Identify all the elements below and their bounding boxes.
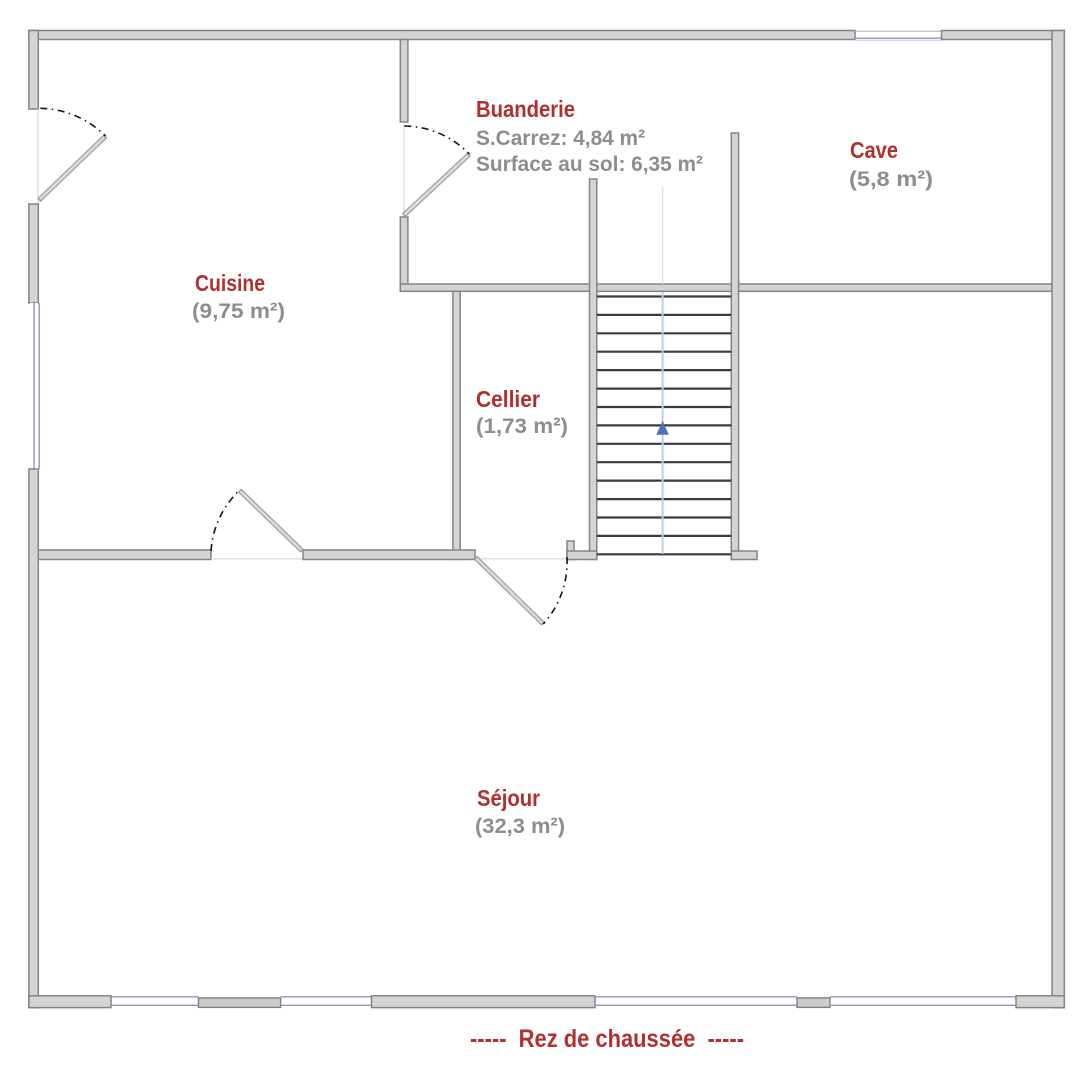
svg-text:Buanderie: Buanderie <box>476 96 575 122</box>
svg-text:Cellier: Cellier <box>476 386 540 412</box>
svg-text:(32,3 m²): (32,3 m²) <box>475 814 565 838</box>
svg-text:Surface au sol: 6,35 m²: Surface au sol: 6,35 m² <box>476 152 703 176</box>
svg-text:(9,75 m²): (9,75 m²) <box>192 299 285 323</box>
svg-text:----- Rez de chaussée -----: ----- Rez de chaussée ----- <box>470 1025 744 1053</box>
svg-text:(5,8 m²): (5,8 m²) <box>849 167 933 191</box>
svg-text:(1,73 m²): (1,73 m²) <box>476 414 568 438</box>
svg-text:Cuisine: Cuisine <box>195 270 265 296</box>
svg-text:Cave: Cave <box>850 137 898 163</box>
svg-text:S.Carrez: 4,84 m²: S.Carrez: 4,84 m² <box>476 126 645 150</box>
svg-text:Séjour: Séjour <box>477 785 540 811</box>
